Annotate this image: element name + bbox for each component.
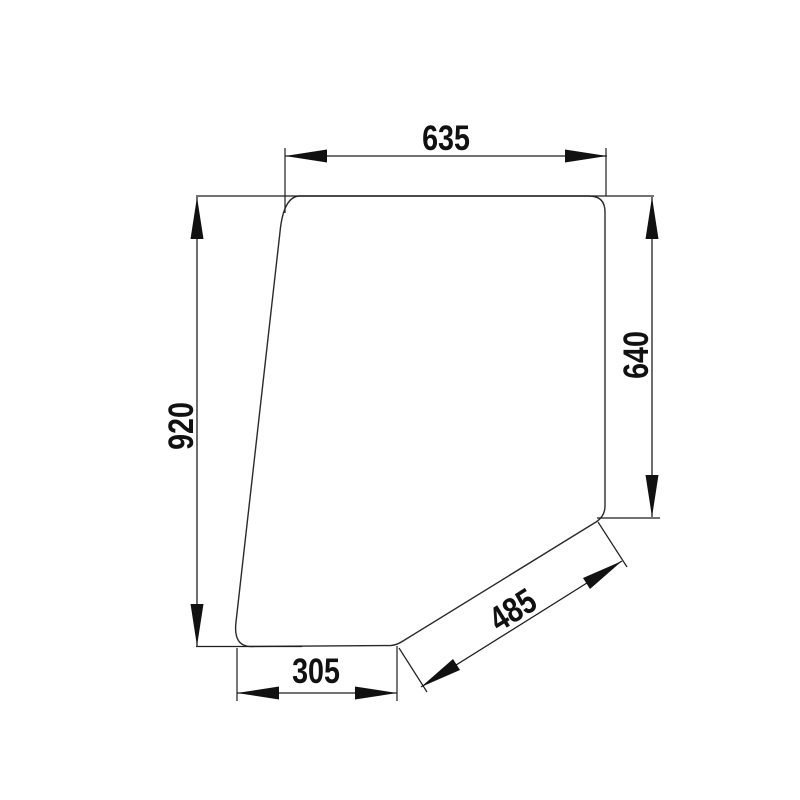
dim-label-bottom-width: 305	[292, 651, 340, 690]
arrowhead-upper-icon	[583, 561, 622, 589]
arrowhead-down-icon	[646, 475, 659, 517]
arrowhead-right-icon	[565, 150, 607, 163]
dimension-diagonal: 485	[399, 522, 627, 692]
dim-label-right-height: 640	[616, 331, 655, 379]
dimension-bottom-width: 305	[237, 646, 397, 701]
drawing-canvas: 635 920 640 305	[0, 0, 800, 800]
dimension-right-height: 640	[597, 197, 660, 518]
extension-line	[598, 522, 627, 567]
dim-label-left-height: 920	[161, 402, 200, 450]
arrowhead-lower-icon	[421, 659, 460, 687]
dim-label-top-width: 635	[422, 118, 470, 157]
technical-drawing: 635 920 640 305	[0, 0, 800, 800]
arrowhead-up-icon	[646, 197, 659, 239]
dimension-top-width: 635	[285, 118, 607, 213]
dimension-left-height: 920	[161, 196, 654, 647]
dim-label-diagonal: 485	[482, 580, 543, 639]
arrowhead-down-icon	[191, 604, 204, 646]
arrowhead-up-icon	[191, 197, 204, 239]
arrowhead-left-icon	[285, 150, 327, 163]
arrowhead-right-icon	[355, 687, 397, 700]
glass-panel-outline	[236, 196, 605, 647]
arrowhead-left-icon	[237, 687, 279, 700]
